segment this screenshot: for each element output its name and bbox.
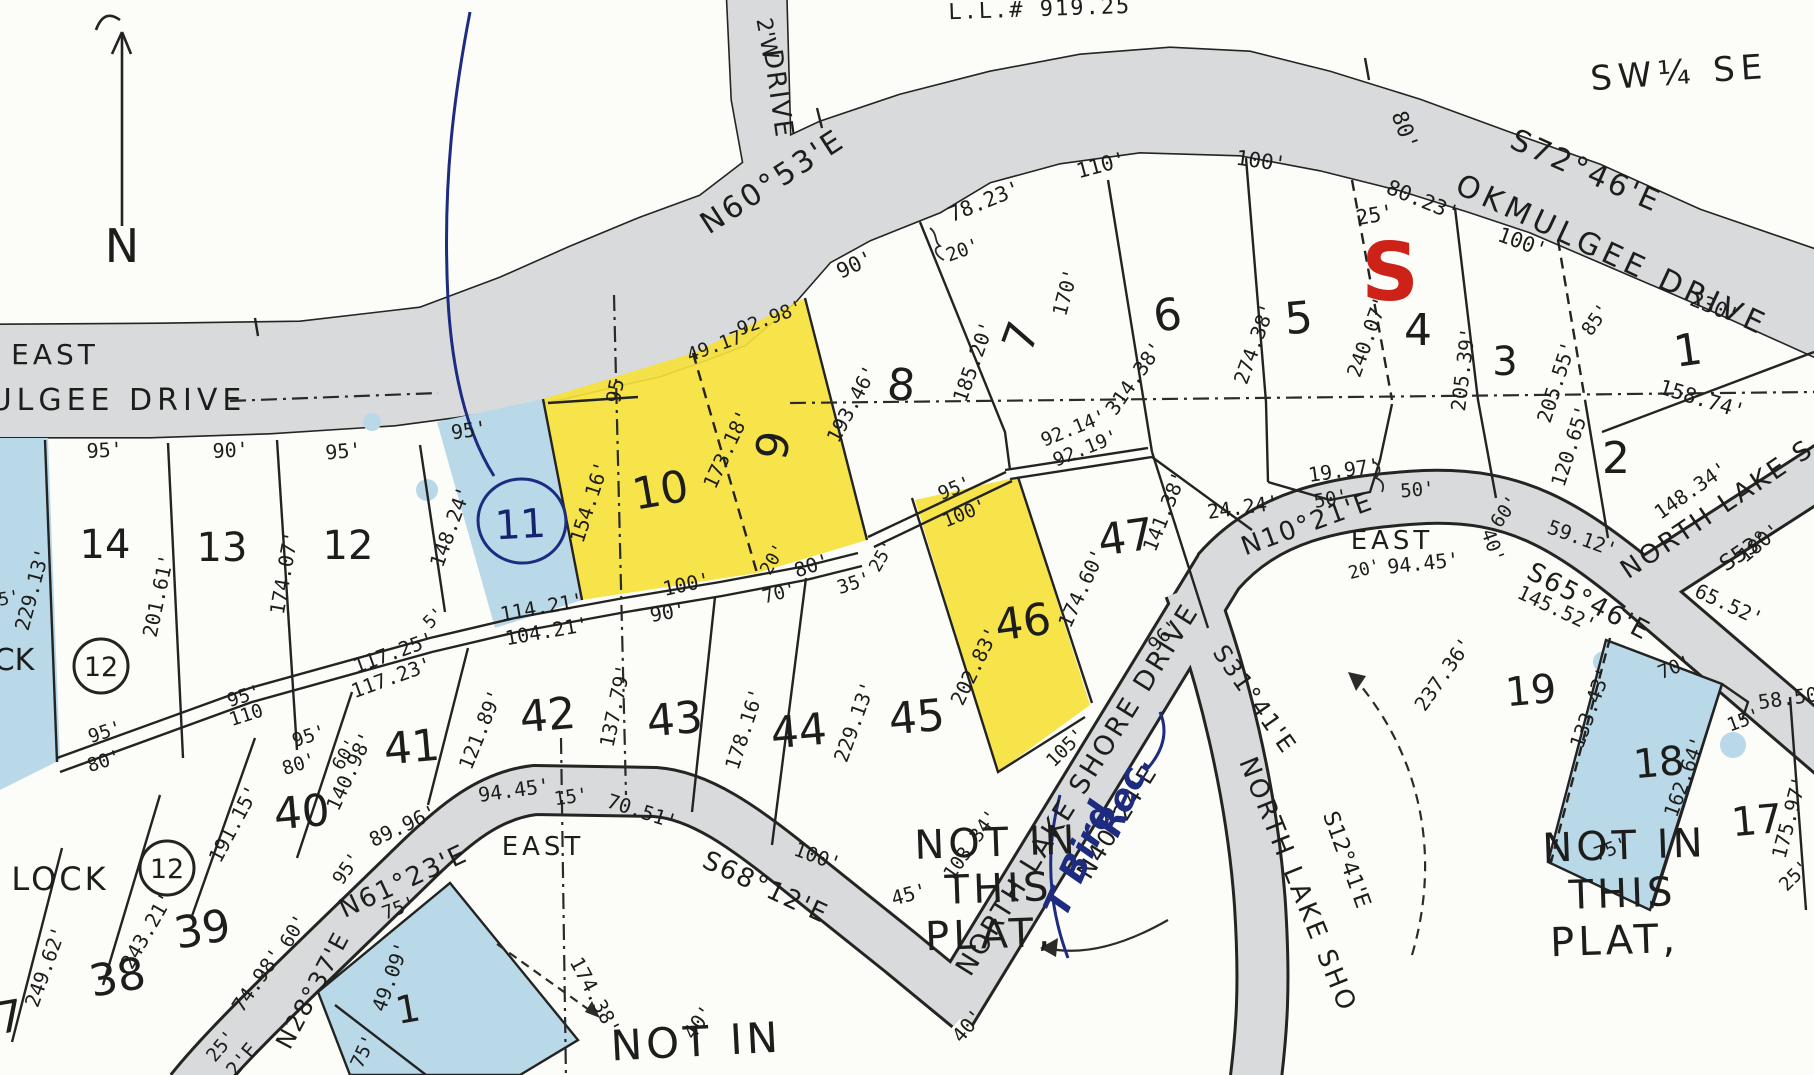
- measurement: 80': [279, 749, 318, 781]
- lot-number: 42: [518, 688, 578, 744]
- lot-number: 3: [1492, 339, 1517, 385]
- lot-number: 10: [628, 461, 692, 521]
- lot-number: 41: [382, 720, 442, 776]
- not-in-plat-note: PLAT,: [924, 910, 1054, 960]
- block-label: CK: [0, 643, 36, 678]
- lot-number: 40: [272, 785, 332, 841]
- measurement: 50': [1399, 478, 1435, 503]
- not-in-plat-note: NOT IN: [1542, 820, 1708, 872]
- lot-number: 1: [1671, 323, 1706, 377]
- lot-number: 5: [1283, 292, 1315, 345]
- road-label: EAST: [502, 832, 585, 862]
- measurement: 20': [1346, 555, 1383, 584]
- measurement: 25': [865, 537, 899, 576]
- lot-number: 7: [993, 315, 1051, 359]
- block-label: LOCK: [11, 860, 108, 898]
- leader-squiggle: [930, 228, 944, 260]
- block-number: 12: [84, 652, 118, 683]
- road-label: EAST: [1351, 526, 1434, 556]
- lot-number: 19: [1504, 666, 1559, 716]
- block-number: 12: [150, 854, 184, 885]
- lot-number: 45: [887, 690, 947, 746]
- not-in-plat-note: NOT IN: [914, 817, 1080, 869]
- measurement: 243.21': [115, 888, 178, 973]
- measurement: 80': [84, 746, 123, 778]
- measurement: 90': [212, 437, 249, 463]
- measurement: 229.13': [829, 678, 880, 765]
- not-in-plat-note: THIS: [1567, 869, 1677, 919]
- section-note: SW¼ SE: [1589, 47, 1769, 99]
- lot-number-annotated: 11: [494, 501, 547, 550]
- measurement: 95': [324, 437, 362, 464]
- measurement: 70': [760, 578, 799, 608]
- measurement: 121.89': [454, 686, 508, 773]
- measurement: 201.61': [138, 552, 179, 639]
- measurement: 15': [1724, 704, 1764, 736]
- lot-number: 39: [170, 900, 234, 960]
- measurement: 95': [85, 717, 124, 749]
- plat-map-svg: NL.L.# 919.25SW¼ SEEASTULGEE DRIVEN60°53…: [0, 0, 1814, 1075]
- measurement: 95': [449, 416, 488, 445]
- measurement: 174.60': [1053, 545, 1110, 632]
- lot-number: 12: [323, 523, 374, 569]
- measurement: 95': [86, 437, 123, 463]
- lot-number: 43: [645, 692, 705, 748]
- measurement: 45': [889, 878, 930, 911]
- measurement: 20': [943, 234, 983, 266]
- measurement: 274.38': [1229, 300, 1280, 387]
- lot-number: 46: [992, 593, 1055, 651]
- lot-number: 2: [1602, 433, 1630, 484]
- measurement: 140.98': [321, 728, 378, 815]
- lot-number: 14: [80, 522, 131, 568]
- survey-note: L.L.# 919.25: [948, 0, 1132, 25]
- measurement: 249.62': [20, 923, 71, 1010]
- road-label: EAST: [11, 338, 99, 371]
- measurement: 90': [648, 597, 688, 627]
- measurement: 205.39': [1446, 326, 1480, 413]
- measurement: 137.79': [595, 662, 636, 749]
- measurement: 95: [601, 377, 629, 405]
- north-arrow: [96, 16, 131, 226]
- measurement: 85': [1577, 299, 1615, 340]
- lot-number: 8: [885, 359, 917, 412]
- road-bearing: S12°41'E: [1317, 808, 1375, 911]
- measurement: 178.16': [720, 685, 769, 773]
- measurement: 5': [0, 586, 22, 610]
- measurement: 170': [1047, 266, 1083, 319]
- north-label: N: [105, 219, 139, 273]
- measurement: 25': [1775, 856, 1814, 896]
- road-label: ULGEE DRIVE: [0, 383, 246, 418]
- lot-number: 13: [197, 525, 248, 571]
- arrow-head: [1348, 672, 1366, 691]
- not-in-plat-note: NOT IN: [609, 1013, 783, 1071]
- not-in-plat-note: PLAT,: [1549, 916, 1679, 966]
- lot-number: 44: [769, 704, 829, 760]
- measurement: 185.20': [948, 318, 999, 405]
- lot-number: 6: [1149, 288, 1185, 343]
- measurement: 237.36': [1409, 633, 1477, 716]
- red-s-marker: S: [1361, 226, 1419, 319]
- measurement: 191.15': [203, 781, 264, 867]
- plat-map-page: NL.L.# 919.25SW¼ SEEASTULGEE DRIVEN60°53…: [0, 0, 1814, 1075]
- measurement: 174.07': [265, 529, 303, 616]
